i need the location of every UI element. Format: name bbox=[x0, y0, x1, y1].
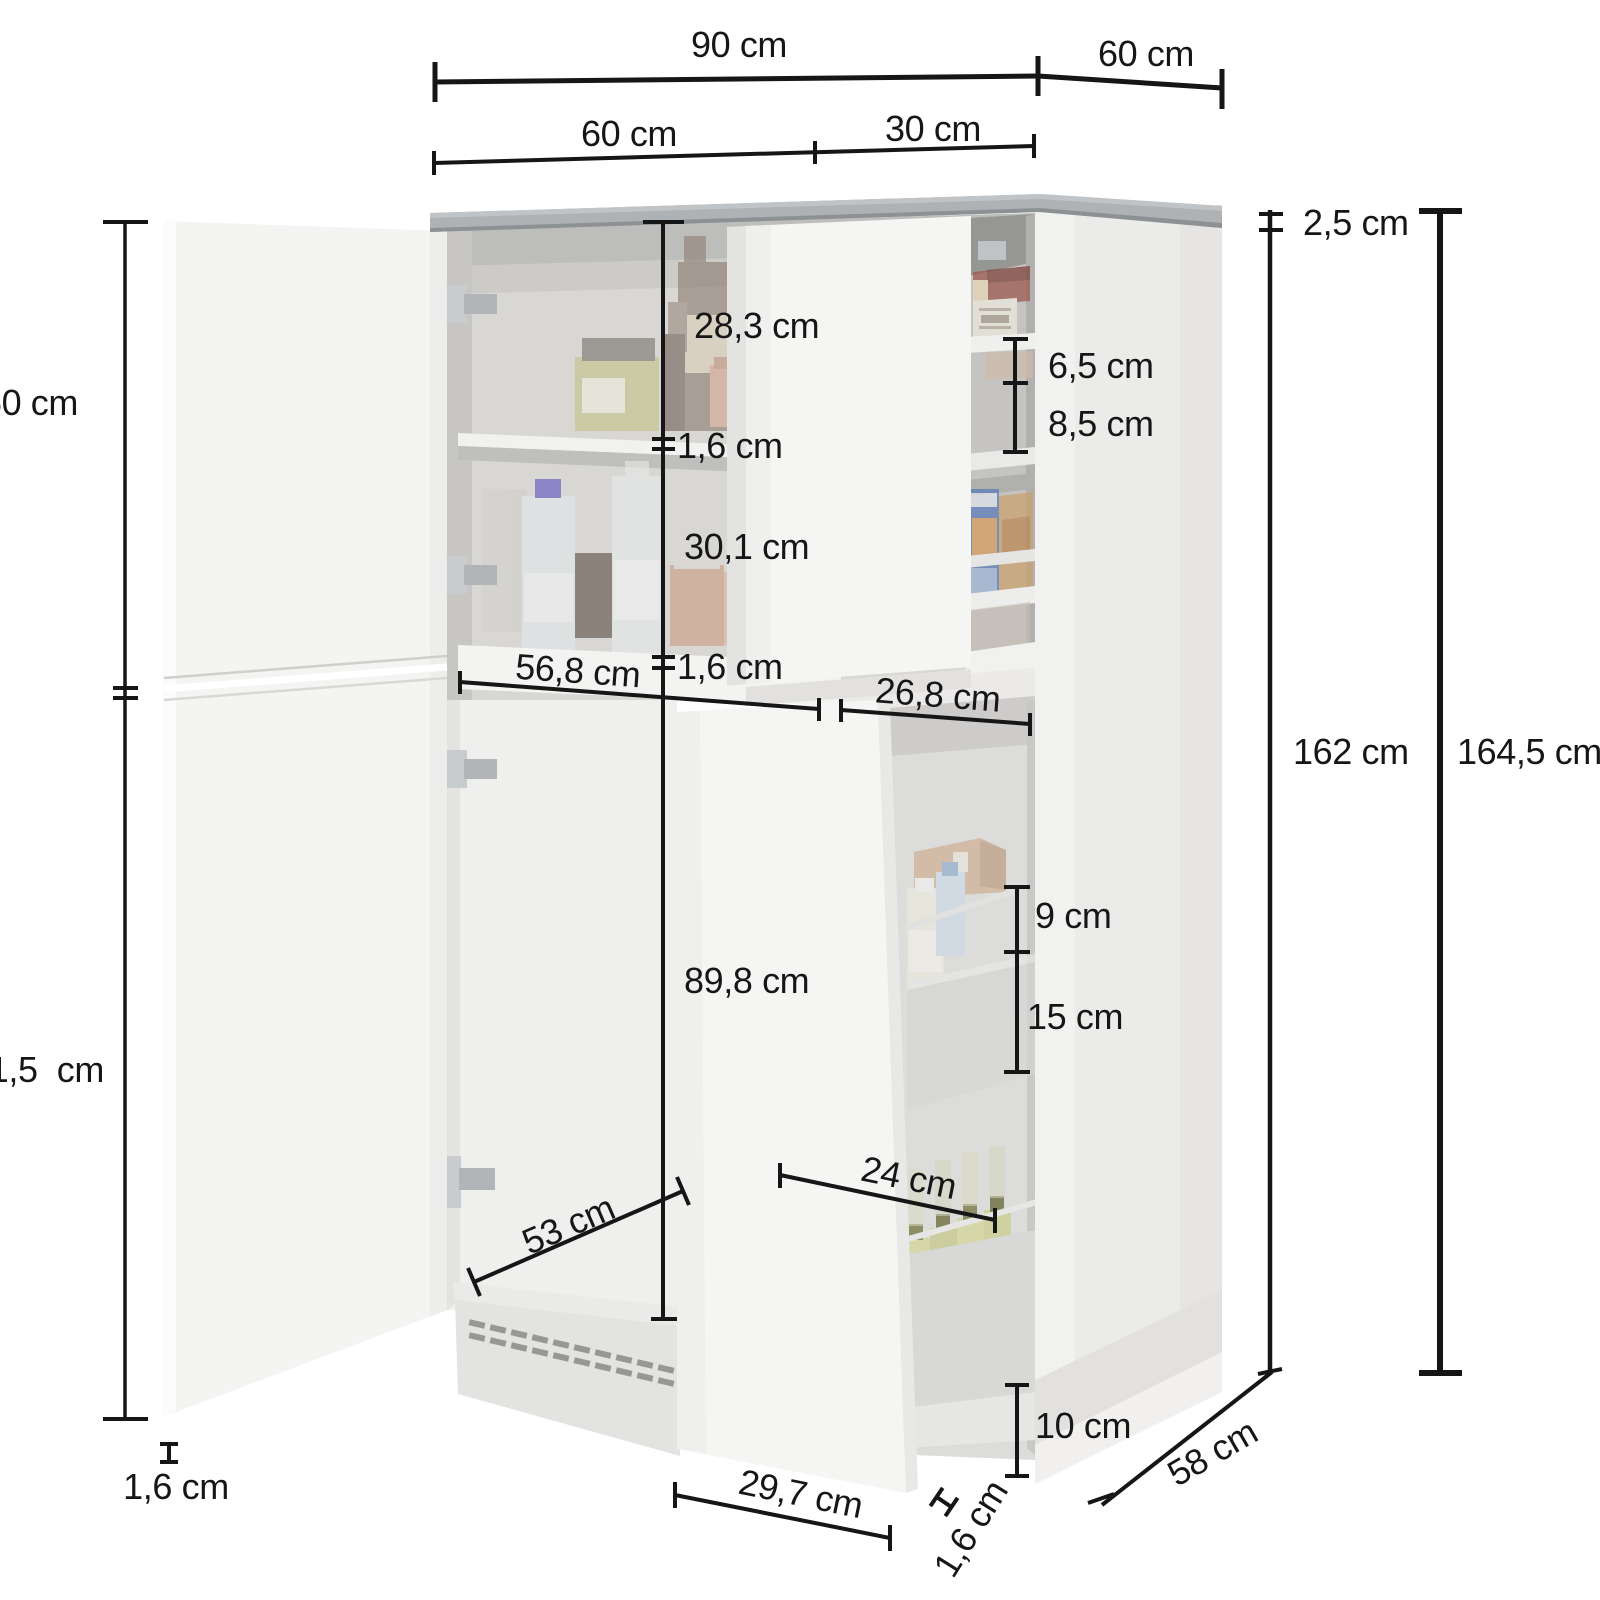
svg-text:56,8 cm: 56,8 cm bbox=[514, 646, 642, 696]
svg-text:1,6 cm: 1,6 cm bbox=[677, 425, 783, 466]
svg-text:8,5 cm: 8,5 cm bbox=[1048, 403, 1154, 444]
svg-text:60 cm: 60 cm bbox=[0, 382, 78, 423]
svg-text:2,5 cm: 2,5 cm bbox=[1303, 202, 1409, 243]
svg-text:60 cm: 60 cm bbox=[581, 113, 677, 154]
svg-text:60 cm: 60 cm bbox=[1098, 33, 1194, 74]
svg-text:1,6 cm: 1,6 cm bbox=[677, 646, 783, 687]
svg-text:90 cm: 90 cm bbox=[691, 24, 787, 65]
svg-text:162 cm: 162 cm bbox=[1293, 731, 1409, 772]
svg-text:30 cm: 30 cm bbox=[885, 108, 981, 149]
svg-text:10 cm: 10 cm bbox=[1035, 1405, 1131, 1446]
svg-text:164,5 cm: 164,5 cm bbox=[1457, 731, 1600, 772]
svg-text:30,1 cm: 30,1 cm bbox=[684, 526, 809, 567]
svg-text:101,5 cm: 101,5 cm bbox=[0, 1049, 104, 1090]
svg-text:15 cm: 15 cm bbox=[1027, 996, 1123, 1037]
svg-text:28,3 cm: 28,3 cm bbox=[694, 305, 819, 346]
svg-text:9 cm: 9 cm bbox=[1035, 895, 1111, 936]
svg-text:89,8 cm: 89,8 cm bbox=[684, 960, 809, 1001]
svg-text:1,6 cm: 1,6 cm bbox=[123, 1466, 229, 1507]
svg-text:6,5 cm: 6,5 cm bbox=[1048, 345, 1154, 386]
